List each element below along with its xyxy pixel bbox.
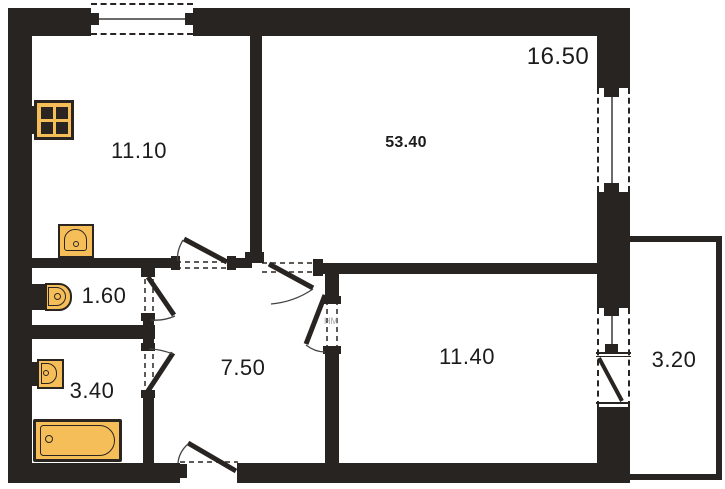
- stove-burner: [56, 122, 68, 134]
- bathtub-icon: [33, 419, 122, 462]
- window-jamb: [604, 308, 619, 316]
- wall-right-lower: [597, 407, 630, 483]
- door-jamb: [323, 296, 341, 304]
- window-jamb: [605, 344, 618, 352]
- wall-right-upper: [597, 8, 630, 88]
- kitchen-area-label: 11.10: [111, 138, 167, 164]
- door-jamb: [179, 464, 187, 478]
- window-right: [597, 88, 630, 192]
- door-jamb: [171, 256, 180, 270]
- kitchen-sink-icon: [58, 224, 94, 258]
- balcony-door-sill: [596, 402, 629, 404]
- wc-door-leaf: [148, 277, 174, 315]
- hallway-area-label: 7.50: [221, 355, 266, 381]
- entrance-door-arc: [178, 444, 188, 463]
- watermark-text: HM: [324, 316, 338, 326]
- living-door-arc: [271, 289, 313, 304]
- window-jamb: [185, 13, 193, 25]
- wall-hall-left-low: [143, 395, 154, 463]
- bathtub-drain: [45, 435, 53, 443]
- door-jamb: [141, 343, 155, 351]
- wall-kitchen-hall-right: [236, 258, 252, 268]
- washbasin-wall-connector: [30, 362, 37, 386]
- toilet-tank: [30, 284, 45, 310]
- balcony-door-unit: [597, 308, 630, 407]
- bathroom-door-leaf: [146, 353, 173, 394]
- wall-hall-right-up: [325, 274, 339, 298]
- balcony-wall-bottom: [627, 474, 722, 480]
- window-jamb: [91, 13, 99, 25]
- wall-left: [8, 8, 32, 483]
- washbasin-icon: [37, 359, 64, 389]
- living-door-leaf: [269, 264, 313, 288]
- wall-bottom-left: [8, 463, 180, 483]
- window-glass-line: [97, 18, 189, 20]
- bedroom-area-label: 11.40: [439, 344, 495, 370]
- balcony-wall-top: [627, 236, 722, 242]
- wall-right-middle: [597, 192, 630, 308]
- total-area-label: 53.40: [385, 134, 427, 152]
- wall-hall-right-low: [325, 352, 339, 463]
- window-glass-line: [611, 95, 613, 185]
- washbasin-drain: [43, 370, 49, 376]
- balcony-door-sill: [596, 356, 631, 357]
- stove-burner: [41, 107, 53, 119]
- sink-drain: [73, 241, 79, 247]
- window-jamb: [604, 183, 619, 192]
- wall-bottom-right: [237, 463, 630, 483]
- stove-burner: [41, 122, 53, 134]
- wall-wc-bathroom: [8, 325, 155, 339]
- living-area-label: 16.50: [527, 43, 590, 71]
- wall-living-bedroom: [313, 263, 603, 274]
- wc-area-label: 1.60: [82, 283, 127, 309]
- balcony-wall-right: [716, 236, 722, 480]
- sink-basin: [64, 229, 87, 251]
- wall-top-main: [193, 8, 630, 36]
- wall-kitchen-hall-left: [8, 258, 171, 268]
- door-jamb: [141, 268, 155, 277]
- toilet-drain: [54, 293, 61, 300]
- door-jamb: [227, 256, 236, 270]
- stove-icon: [34, 100, 74, 140]
- kitchen-door-leaf: [184, 239, 227, 262]
- window-jamb: [604, 88, 619, 97]
- toilet-icon: [45, 283, 72, 311]
- door-jamb: [313, 259, 323, 276]
- wall-kitchen-divider: [250, 36, 262, 254]
- stove-burner: [56, 107, 68, 119]
- balcony-door-sill: [596, 352, 631, 354]
- balcony-area-label: 3.20: [652, 347, 697, 373]
- floor-plan: 11.10 16.50 53.40 1.60 3.40 7.50 11.40 3…: [0, 0, 725, 489]
- entrance-door-leaf: [188, 443, 236, 471]
- bathroom-area-label: 3.40: [70, 378, 115, 404]
